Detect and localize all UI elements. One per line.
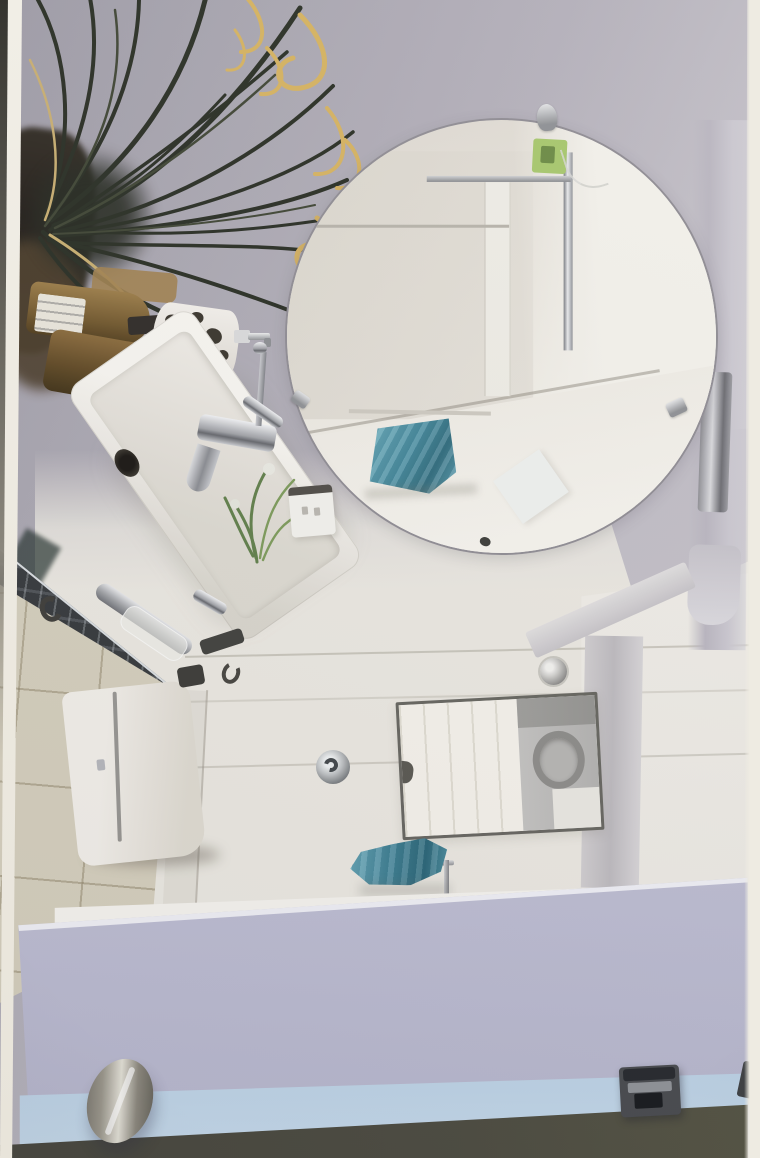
interior-window [396,692,605,840]
rotated-bathroom-photo [0,0,760,1158]
faucet-rod-tip [253,342,267,354]
flush-button-ring [321,755,340,774]
latch-hole [634,1092,663,1108]
toilet-lid-seam [113,692,122,842]
toilet-logo [96,759,105,771]
mirror-chrome-bar-vertical [564,152,573,350]
mirror-frame-line [307,225,509,228]
switch-button [314,507,321,515]
washer-top-panel [516,695,596,728]
light-switch [288,484,336,538]
latch-top-bar [623,1067,676,1082]
washer-bright-patch [552,787,601,829]
latch-body [628,1081,672,1093]
sticker-mark [540,146,555,164]
knob-gleam [105,1066,136,1136]
toilet-cistern [61,680,207,867]
mirror-door-edge-reflection [485,182,511,396]
round-mirror [274,107,729,566]
door-latch [619,1064,682,1117]
washing-machine [516,695,601,831]
washer-door-ring [531,730,586,791]
ceiling-spotlight [540,658,567,685]
mirror-chrome-bar-horizontal [427,176,571,182]
window-blinds [399,699,527,837]
flush-button [316,750,350,784]
switch-button [302,506,309,514]
photo-content [0,0,760,1158]
